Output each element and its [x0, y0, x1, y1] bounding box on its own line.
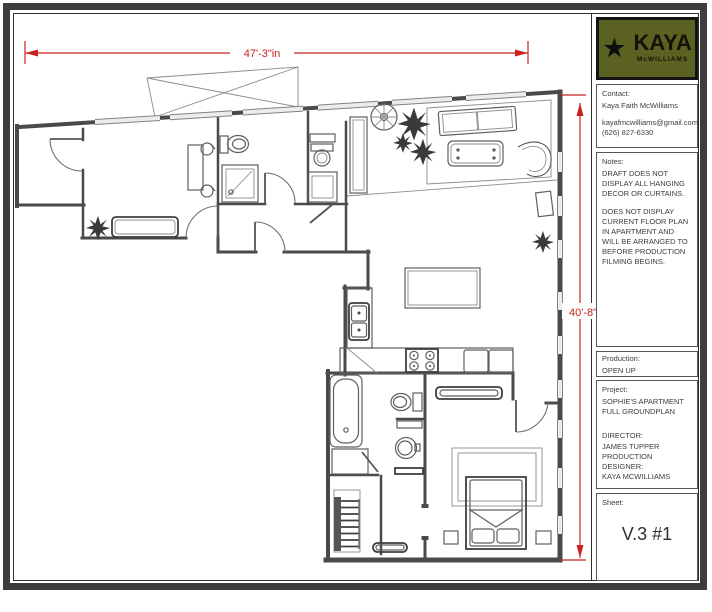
- contact-name: Kaya Faith McWilliams: [602, 101, 692, 111]
- round-plant: [371, 104, 397, 130]
- side-table: [536, 191, 554, 217]
- appliance: [489, 350, 513, 372]
- kitchen-counter-left: [347, 288, 372, 348]
- appliance: [464, 350, 488, 372]
- director-label: DIRECTOR:: [602, 431, 692, 441]
- door-wc: [310, 204, 333, 223]
- window: [558, 420, 563, 438]
- wc-room: [308, 134, 337, 202]
- star-icon: ★: [602, 35, 626, 62]
- production-heading: Production:: [602, 354, 692, 364]
- bathtub: [330, 375, 362, 447]
- notes-section: Notes: DRAFT DOES NOT DISPLAY ALL HANGIN…: [596, 152, 698, 347]
- project-heading: Project:: [602, 385, 692, 395]
- coffee-table: [448, 141, 503, 166]
- designer-name: KAYA MCWILLIAMS: [602, 472, 692, 482]
- kitchen-island: [405, 268, 480, 308]
- dimension-width: 47'-3"in: [25, 41, 528, 64]
- door-left-room: [186, 206, 218, 238]
- wall-cabinet: [188, 143, 215, 197]
- doors: [50, 139, 548, 432]
- designer-label: PRODUCTION: [602, 452, 692, 462]
- window: [95, 116, 160, 125]
- door-balcony: [50, 139, 82, 171]
- height-dimension-label: 40'-8": [569, 307, 597, 319]
- logo: ★ KAYA McWILLIAMS: [596, 17, 698, 80]
- window: [558, 240, 563, 258]
- window: [243, 106, 303, 115]
- window: [558, 380, 563, 398]
- closet-shelves: [334, 490, 360, 552]
- toilet: [220, 136, 249, 154]
- kitchen-counter-bottom: [340, 348, 513, 373]
- curved-chair: [518, 142, 551, 177]
- production-value: OPEN UP: [602, 366, 692, 376]
- bed: [466, 477, 526, 549]
- notes-heading: Notes:: [602, 157, 692, 167]
- project-name: FULL GROUNDPLAN: [602, 407, 692, 417]
- director-name: JAMES TUPPER: [602, 442, 692, 452]
- designer-label: DESIGNER:: [602, 462, 692, 472]
- plant: [410, 139, 436, 165]
- window-bench: [436, 387, 502, 399]
- window: [558, 468, 563, 488]
- toilet: [391, 393, 422, 411]
- living-sofa: [438, 106, 516, 135]
- door-bathroom-upper: [265, 173, 295, 203]
- plants: [86, 104, 554, 253]
- notes-paragraph: DOES NOT DISPLAY CURRENT FLOOR PLAN IN A…: [602, 207, 692, 268]
- window: [558, 292, 563, 310]
- width-dimension-label: 47'-3"in: [244, 48, 281, 60]
- window: [392, 96, 452, 105]
- tub-cabinet: [332, 449, 378, 474]
- plant: [86, 216, 110, 240]
- plant: [393, 133, 413, 153]
- interior-walls: [83, 112, 559, 560]
- notes-paragraph: DRAFT DOES NOT DISPLAY ALL HANGING DECOR…: [602, 169, 692, 199]
- sheet-section: Sheet: V.3 #1: [596, 493, 698, 581]
- window: [558, 196, 563, 216]
- window: [466, 92, 526, 101]
- contact-heading: Contact:: [602, 89, 692, 99]
- drawing-sheet: 47'-3"in 40'-8" ★ KAYA McWILLIAMS Contac…: [0, 0, 712, 612]
- project-section: Project: SOPHIE'S APARTMENT FULL GROUNDP…: [596, 380, 698, 489]
- plant: [532, 231, 554, 253]
- door-corridor: [255, 222, 285, 252]
- pedestal-sink: [395, 421, 423, 474]
- pillow: [472, 529, 494, 543]
- contact-email: kayafmcwilliams@gmail.com: [602, 118, 692, 128]
- pillow: [497, 529, 519, 543]
- window: [170, 111, 232, 120]
- logo-sub-brand: McWILLIAMS: [637, 56, 688, 65]
- contact-phone: (626) 827-6330: [602, 128, 692, 138]
- shower-stall: [222, 165, 258, 202]
- production-section: Production: OPEN UP: [596, 351, 698, 377]
- pantry-cabinet: [350, 117, 367, 193]
- window: [558, 336, 563, 354]
- window: [558, 516, 563, 534]
- right-wall-windows: [558, 152, 563, 534]
- doormat: [373, 543, 407, 552]
- sheet-heading: Sheet:: [602, 498, 692, 508]
- daybed: [112, 217, 178, 237]
- project-name: SOPHIE'S APARTMENT: [602, 397, 692, 407]
- outer-walls: [17, 92, 560, 560]
- door-bedroom: [516, 400, 548, 432]
- contact-section: Contact: Kaya Faith McWilliams kayafmcwi…: [596, 84, 698, 148]
- sheet-number: V.3 #1: [602, 522, 692, 546]
- window: [318, 101, 378, 110]
- logo-brand: KAYA: [633, 32, 691, 54]
- window: [558, 152, 563, 172]
